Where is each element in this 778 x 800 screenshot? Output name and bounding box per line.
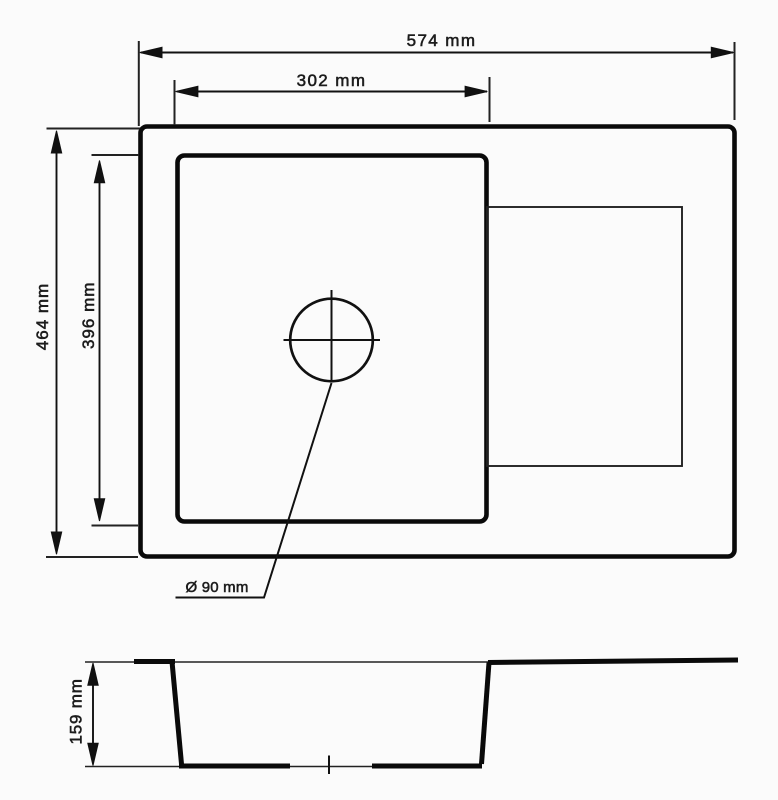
svg-text:Ø 90 mm: Ø 90 mm: [186, 579, 249, 596]
svg-text:464 mm: 464 mm: [33, 283, 52, 350]
svg-text:396 mm: 396 mm: [79, 282, 98, 349]
svg-text:302 mm: 302 mm: [297, 71, 367, 90]
svg-text:574 mm: 574 mm: [407, 31, 477, 50]
svg-text:159 mm: 159 mm: [67, 678, 86, 744]
